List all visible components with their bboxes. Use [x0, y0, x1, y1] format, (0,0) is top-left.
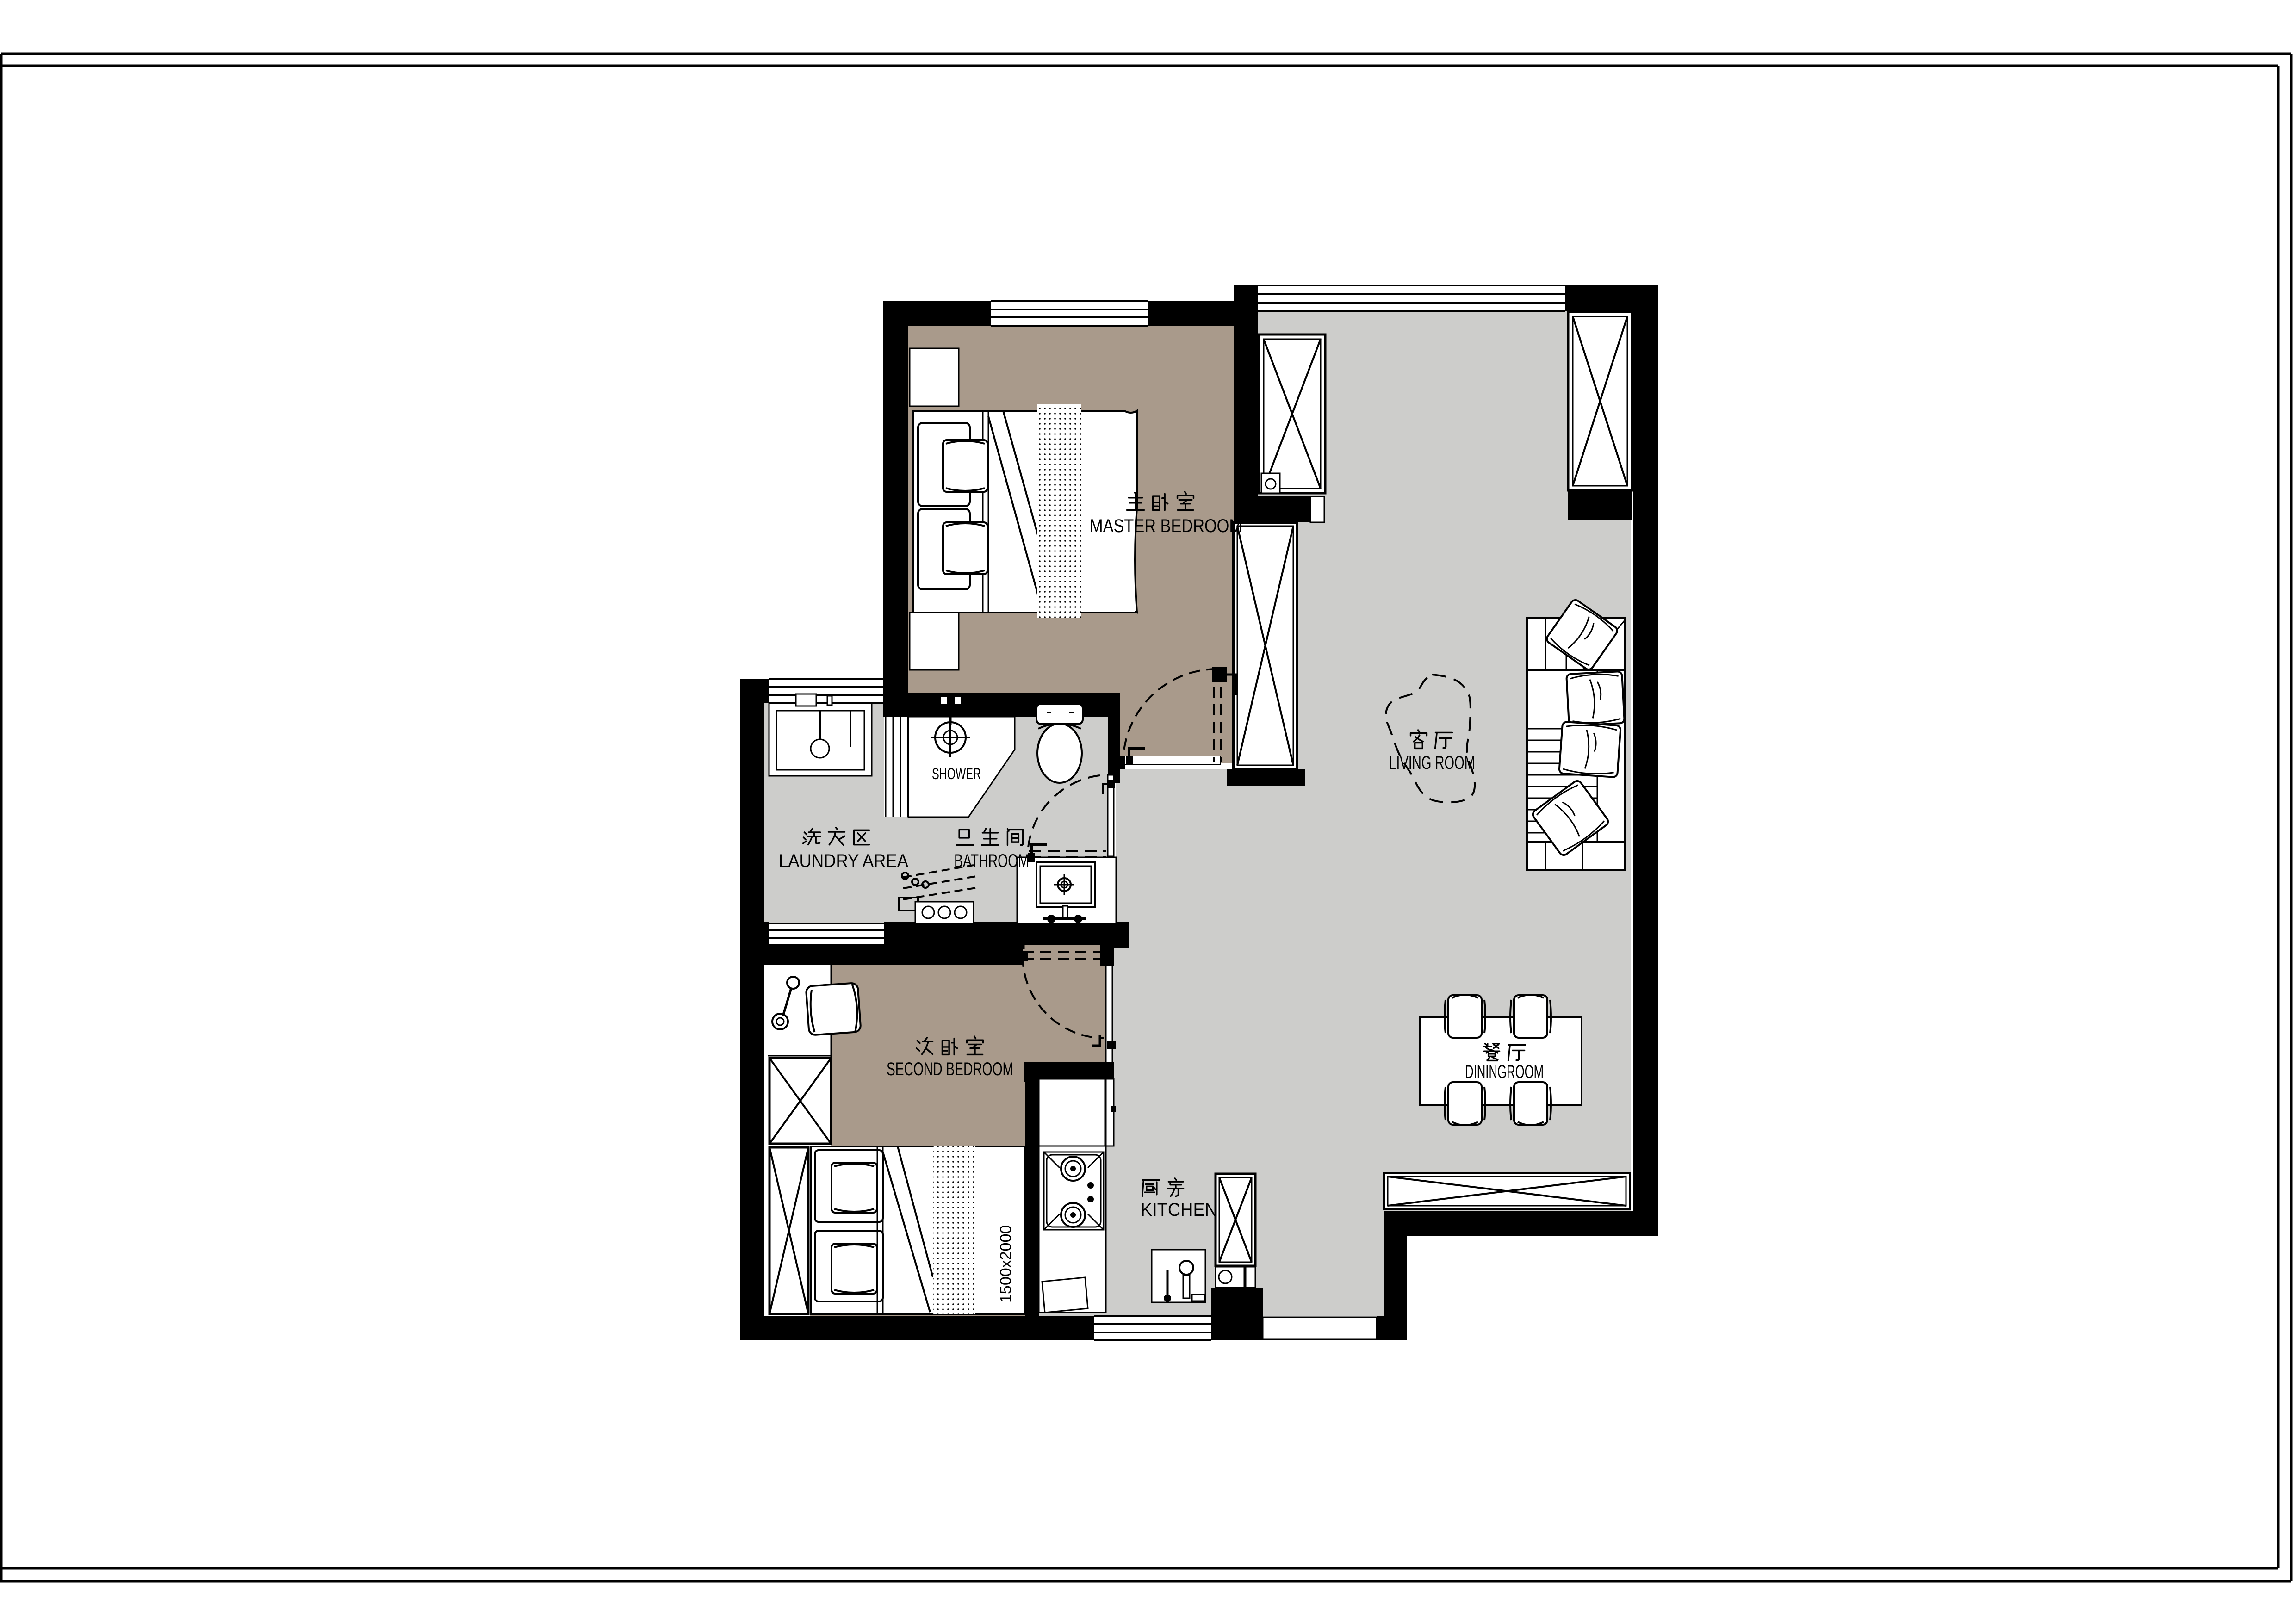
svg-text:MASTER BEDROOM: MASTER BEDROOM — [1090, 516, 1242, 536]
svg-text:1500x2000: 1500x2000 — [997, 1225, 1015, 1303]
svg-text:LAUNDRY AREA: LAUNDRY AREA — [779, 851, 908, 871]
svg-text:SECOND BEDROOM: SECOND BEDROOM — [887, 1059, 1013, 1079]
svg-text:SHOWER: SHOWER — [932, 765, 981, 783]
svg-text:BATHROOM: BATHROOM — [954, 851, 1029, 871]
svg-text:DININGROOM: DININGROOM — [1465, 1062, 1544, 1082]
svg-text:LIVING ROOM: LIVING ROOM — [1389, 753, 1475, 773]
svg-text:KITCHEN: KITCHEN — [1141, 1200, 1217, 1220]
